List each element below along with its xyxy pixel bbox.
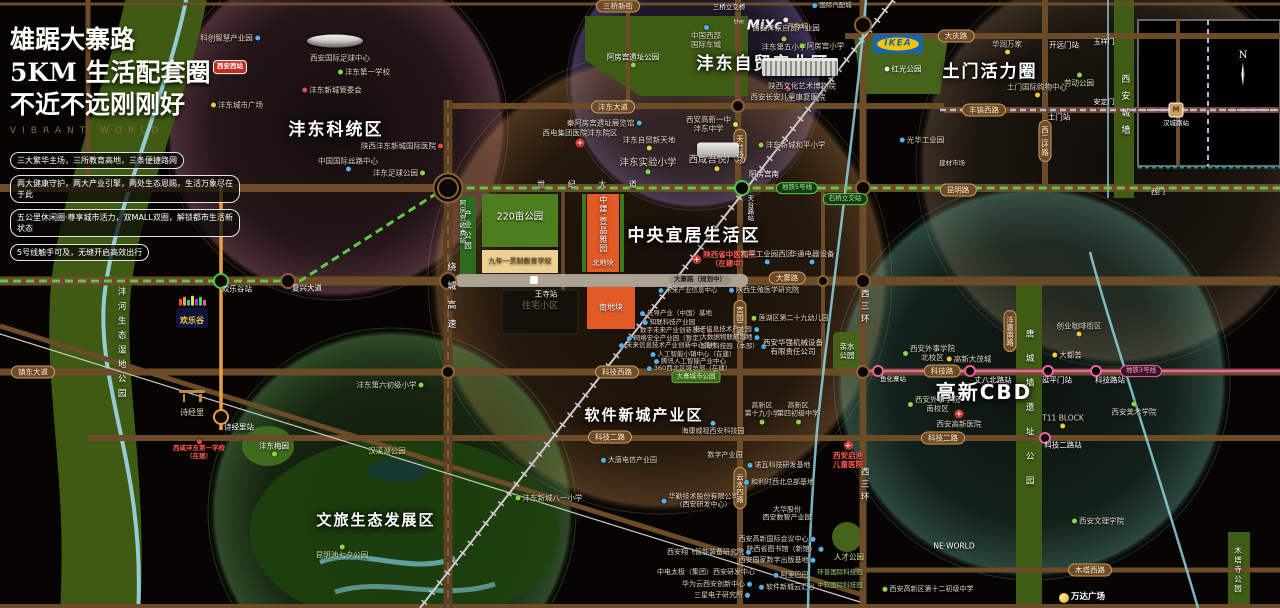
map-label: 复兴大道 <box>292 284 322 293</box>
poi: 沣东新城和平小学 <box>759 141 826 150</box>
map-label: 沣东自贸新天地 <box>623 136 676 145</box>
map-label: 西安高新医院 <box>937 420 982 429</box>
road-keji-west: 科技西路 <box>595 366 639 379</box>
station-wangsi: 王寺站 <box>535 290 558 299</box>
poi: 沣东新城管委会 <box>302 86 362 95</box>
poi: 高新区第四初级中学 <box>777 402 819 425</box>
header-panel: 雄踞大寨路 5KM 生活配套圈 不近不远刚刚好 VIBRANT WORLD 三大… <box>10 24 240 264</box>
map-label: 大唐电信产业园 <box>608 456 657 464</box>
map-label: 沣东新城八一小学 <box>523 494 583 503</box>
map-label: 沣河生态湿地公园 <box>116 287 126 403</box>
map-label: 阿里巴巴 <box>781 571 809 579</box>
map-label: 镇东大道 <box>18 368 48 377</box>
station-ring <box>856 365 870 379</box>
header-bullet: 两大健康守护，两大产业引擎，两处生态恩赐，生活万象尽在于此 <box>10 175 240 203</box>
poi: 未来产业信息中心 <box>659 287 718 295</box>
road-keji: 科技路 <box>924 365 961 378</box>
map-label: 丈八北路站 <box>974 376 1012 385</box>
station-yuhuazhai: 鱼化寨站 <box>880 376 906 384</box>
poi-dot-icon <box>420 171 425 176</box>
poi: 人才公园 <box>834 553 864 562</box>
poi: 光华工业园 <box>900 136 945 145</box>
poi: 高新区第十九小学 <box>745 402 780 425</box>
map-label: 陕西文化艺术博物院 <box>768 82 836 91</box>
map-label: 大寨城市公园 <box>677 373 716 381</box>
road-muta-west: 木塔西路 <box>1068 564 1112 577</box>
mutasi-park: 木塔寺公园 <box>1234 546 1243 594</box>
poi: T11 BLOCK <box>1042 414 1084 429</box>
poi: 创业咖啡街区 <box>1057 322 1102 337</box>
map-label: 中建·壹品雅园 <box>598 195 608 253</box>
map-label: 地铁3号线 <box>1126 367 1156 375</box>
poi: 三桥立交桥 <box>713 4 746 12</box>
poi: 西安高新一中沣东中学 <box>686 115 738 133</box>
poi: 环普国际科技园 <box>817 569 863 577</box>
poi-dot-icon <box>1077 73 1082 78</box>
map-label: 产业公园 <box>464 210 473 252</box>
map-label: 唐城墙遗址公园 <box>1024 329 1034 501</box>
poi: 沣东实验小学 <box>619 157 676 174</box>
station-shijingli: 诗经里站 <box>224 423 254 432</box>
poi-dot-icon <box>900 138 905 143</box>
poi: +西安高新医院 <box>937 410 982 429</box>
poi-dot-icon <box>747 581 752 586</box>
station-ring <box>441 365 455 379</box>
map-label: 鱼化寨站 <box>880 376 906 384</box>
map-label: M <box>1169 103 1184 118</box>
poi: 中国西部国际车城 <box>691 25 721 49</box>
station-kejilu: 科技路站 <box>1095 376 1125 385</box>
map-label: 西咸沣东第一学校（在建） <box>173 445 225 461</box>
poi: 沣东新城八一小学 <box>516 494 583 503</box>
station-yanpingmen: 延平门站 <box>1042 376 1072 385</box>
map-label: 石桥立交站 <box>829 195 862 203</box>
poi: 西安高新国际会议中心 <box>739 535 816 543</box>
map-label: 昆明池七夕公园 <box>316 551 369 560</box>
map-label: 大都荟 <box>1059 351 1082 360</box>
industry-park-strip: 产业公园 <box>464 210 473 252</box>
poi-dot-icon <box>1072 519 1077 524</box>
map-label: 西安文理学院 <box>1079 517 1124 526</box>
poi-dot-icon <box>643 320 648 325</box>
poi-dot-icon <box>302 88 307 93</box>
map-label: 中国国际丝路中心 <box>318 157 378 166</box>
station-ring <box>734 180 750 196</box>
poi-dot-icon <box>647 366 652 371</box>
map-label: 昆明路 <box>947 186 970 195</box>
map-label: 三桥新街 <box>603 2 633 11</box>
poi-dot-icon <box>255 36 260 41</box>
poi: 亲水公园 <box>840 342 855 360</box>
poi: 先导产业（中国）基地 <box>640 310 712 318</box>
poi-dot-icon <box>800 44 805 49</box>
poi-dot-icon <box>419 383 424 388</box>
poi: 阿房宫遗址公园 <box>607 53 660 68</box>
map-label: 万达广场 <box>1071 593 1105 603</box>
map-label: 北地块 <box>593 259 614 267</box>
header-bullet: 五公里休闲圈·尊享城市活力，双MALL双圈，解锁都市生活新状态 <box>10 209 240 237</box>
poi: 陕西生殖医学研究院 <box>729 286 799 294</box>
map-label: 亲水公园 <box>840 342 855 360</box>
map-label <box>179 390 205 393</box>
map-label: 和平工业园西区 <box>741 250 794 259</box>
map-label: 西三环 <box>859 289 869 327</box>
poi: 沣东自贸新天地 <box>623 136 676 151</box>
map-label: 诗经里 <box>180 408 204 418</box>
poi: 土门国际购物中心 <box>1007 83 1067 98</box>
map-label: 西安高新国际会议中心 <box>739 535 809 543</box>
poi-dot-icon <box>754 327 759 332</box>
poi: 西安翔飞智能装备研究院 <box>667 548 751 556</box>
map-label: 西安国家数字出版基地 <box>739 556 809 564</box>
ikea-logo: IKEA <box>873 35 923 54</box>
poi-dot-icon <box>438 144 443 149</box>
map-label: 汉城路站 <box>1163 120 1189 128</box>
map-label: 沣东新城和平小学 <box>766 141 826 150</box>
map-label: 高新区第四初级中学 <box>777 402 819 419</box>
station-ring <box>731 99 745 113</box>
gate-yuxiangmen: 玉祥门 <box>1094 38 1115 46</box>
project-school-label: 九年一贯制教育学校 <box>489 257 552 265</box>
map-label: 欢乐谷 <box>176 308 208 328</box>
road-dazhai-planned: 大寨路（规划中） <box>669 275 731 285</box>
map-label: 土门站 <box>1048 113 1071 122</box>
map-label: 沣东科统区 <box>289 120 384 140</box>
museum-shape <box>762 58 838 76</box>
map-label: 欢乐谷站 <box>222 285 252 294</box>
map-label: 住宅小区 <box>522 302 558 313</box>
poi-dot-icon <box>745 592 750 597</box>
poi: 中电太极（集团）西安研发中心 <box>657 568 755 576</box>
title-line-2: 5KM 生活配套圈 <box>10 57 240 90</box>
road-shiji-dadao: 世 纪 大 道 <box>537 180 647 190</box>
poi: 沣东第六初级小学 <box>357 381 424 390</box>
poi-dot-icon <box>796 419 801 424</box>
poi-dot-icon <box>733 122 738 127</box>
poi: 莲湖区第二十九幼儿园 <box>752 314 829 322</box>
map-label: 陕西生殖医学研究院 <box>736 286 799 294</box>
map-label: 秦阿房宫遗址展览馆 <box>567 119 635 128</box>
map-label: 科技路 <box>931 367 954 376</box>
station-afanggong-south: 阿房宫南 <box>749 170 779 179</box>
hospital-cross-icon: + <box>576 139 585 148</box>
map-label: 沣东新城管委会 <box>309 86 362 95</box>
tang-wall-park: 唐城墙遗址公园 <box>1024 329 1034 501</box>
poi: 华通电器设备 <box>790 250 835 265</box>
poi: 国际汽配城 <box>812 2 852 10</box>
poi: 西安华强机械设备有限责任公司 <box>763 338 823 356</box>
wanda-icon <box>1059 593 1069 603</box>
map-label: 创业咖啡街区 <box>1057 322 1102 331</box>
map-label: 大庆路 <box>945 32 968 41</box>
gate-ximen: 西门 <box>1151 188 1165 196</box>
map-label: T11 BLOCK <box>1042 414 1084 423</box>
residential-area: 住宅小区 <box>522 302 558 313</box>
map-label: 西咸吾悦广场 <box>688 154 745 165</box>
poi: 陕西文化艺术博物院 <box>768 82 836 91</box>
poi: 西咸吾悦广场 <box>688 154 745 171</box>
map-label: 世 纪 大 道 <box>537 180 647 190</box>
poi-dot-icon <box>516 496 521 501</box>
station-ring <box>817 275 829 287</box>
poi: 华润万家 <box>992 40 1022 55</box>
map-label: 环普国际科技园 <box>817 569 863 577</box>
map-label: 地铁5号线 <box>782 184 812 192</box>
map-label: 红光公园 <box>892 65 922 74</box>
map-label: the <box>734 20 744 27</box>
map-label: 陕西沣东新城国际医院 <box>361 142 436 151</box>
poi-dot-icon <box>601 457 606 462</box>
title-line-3: 不近不远刚刚好 <box>10 89 240 122</box>
fenghe-wetland-park: 沣河生态湿地公园 <box>116 287 126 403</box>
station-happy-valley: 欢乐谷站 <box>222 285 252 294</box>
poi: 高新大茂城 <box>947 355 992 364</box>
poi-dot-icon <box>908 402 913 407</box>
poi-dot-icon <box>272 452 277 457</box>
map-label: 科技二路 <box>595 433 625 442</box>
project-name: 中建·壹品雅园 <box>598 195 608 253</box>
map-label: 沣东足球公园 <box>373 169 418 178</box>
poi-dot-icon <box>810 260 815 265</box>
bullet-list: 三大繁华主场，三所教育高地，三条便捷路网两大健康守护，两大产业引擎，两处生态恩赐… <box>10 148 240 264</box>
hospital-cross-icon: + <box>955 410 964 419</box>
map-label: 开远门站 <box>1049 41 1079 50</box>
map-label: 软件新城云汇谷 <box>766 583 815 591</box>
poi: 阿里巴巴 <box>774 571 809 579</box>
map-label: 国际汽配城 <box>819 2 852 10</box>
poi: 西安国家数字出版基地 <box>739 556 816 564</box>
map-label: 建材市场 <box>939 160 965 168</box>
poi-dot-icon <box>784 18 789 23</box>
poi: 秦阿房宫遗址展览馆 <box>567 119 642 128</box>
project-north-plot: 北地块 <box>593 259 614 267</box>
map-label: 西电集团医院沣东院区 <box>543 129 618 138</box>
poi: 红光公园 <box>885 65 922 74</box>
map-label: 华勤技术股份有限公司（西安研发中心） <box>669 493 739 510</box>
compass-north: N <box>1239 50 1248 87</box>
map-label: 诗经里站 <box>224 423 254 432</box>
map-label: 科技西路 <box>602 368 632 377</box>
wanda-plaza-logo: 万达广场 <box>1059 593 1105 603</box>
map-label: 诺瓦科技研发基地 <box>755 461 811 469</box>
map-label: 西门 <box>1151 188 1165 196</box>
map-label: 沣东大道 <box>598 103 628 112</box>
map-label: 玉祥门 <box>1094 38 1115 46</box>
poi: 中软国际科技园 <box>817 582 863 590</box>
poi: NE·WORLD <box>933 542 974 551</box>
station-shiqiao: 石桥立交站 <box>823 193 868 205</box>
happy-valley-logo: 欢乐谷 <box>176 296 208 328</box>
poi: +西安启迪儿童医院 <box>833 441 863 469</box>
poi: 大都荟 <box>1052 351 1082 360</box>
xian-city-wall: 西安城墙 <box>1119 74 1130 142</box>
map-label: 西安长安儿童康复医院 <box>751 93 826 102</box>
map-label: 阿房宫遗址公园 <box>607 53 660 62</box>
road-daqing: 大庆路 <box>938 30 975 43</box>
map-label: 西安启迪儿童医院 <box>833 451 863 469</box>
poi-dot-icon <box>346 167 351 172</box>
road-fuxing: 复兴大道 <box>292 284 322 293</box>
map-label: 科技二路站 <box>1044 441 1082 450</box>
poi-dot-icon <box>659 288 664 293</box>
station-tiantailu: 天台路站 <box>745 195 753 221</box>
project-south-plot: 南地块 <box>599 303 623 313</box>
title-line-1: 雄踞大寨路 <box>10 24 240 57</box>
poi-dot-icon <box>811 557 816 562</box>
compass-needle <box>1239 62 1248 86</box>
map-label: 西安高新区第十二初级中学 <box>890 585 974 593</box>
poi: 西安高新区第十二初级中学 <box>883 585 974 593</box>
station-hanchenglu: 汉城路站 <box>1163 120 1189 128</box>
poi-dot-icon <box>1005 50 1010 55</box>
map-label: 大寨路（规划中） <box>674 276 726 284</box>
map-label: 和利时西北总部基地 <box>751 478 814 486</box>
poi-dot-icon <box>755 335 760 340</box>
poi: 西安美术学院 <box>1112 402 1157 417</box>
stadium-shape <box>307 35 363 48</box>
poi-dot-icon <box>729 287 734 292</box>
map-label: 高新大茂城 <box>954 355 992 364</box>
header-bullet: 三大繁华主场，三所教育高地，三条便捷路网 <box>10 152 184 169</box>
map-label: 沣惠南路 <box>1006 316 1015 346</box>
stadium-icon <box>307 35 363 48</box>
poi-dot-icon <box>631 63 636 68</box>
poi-dot-icon <box>647 146 652 151</box>
map-label: 人才公园 <box>834 553 864 562</box>
zone-central-living: 中央宜居生活区 <box>628 226 761 246</box>
map-label: 劳动公园 <box>1064 79 1094 88</box>
poi-dot-icon <box>774 572 779 577</box>
map-label: 天台路站 <box>745 195 753 221</box>
map-label: 西三环 <box>859 467 869 505</box>
metro-station-icon: M <box>1169 103 1184 118</box>
poi: 大寨城市公园 <box>672 371 721 383</box>
poi-dot-icon <box>1077 332 1082 337</box>
map-label: 220亩公园 <box>497 211 544 222</box>
road-sanqiao: 三桥新街 <box>596 0 640 13</box>
subtitle: VIBRANT WORLD <box>10 126 240 136</box>
ikea-ellipse: IKEA <box>877 38 919 51</box>
map-label: 沣东实验小学 <box>619 157 676 168</box>
road-dazhai: 大寨路 <box>769 272 806 285</box>
poi: 诗经里 <box>180 408 204 418</box>
project-park-label: 220亩公园 <box>497 211 544 222</box>
poi-dot-icon <box>704 25 709 30</box>
poi-dot-icon <box>636 121 641 126</box>
station-tumen: 土门站 <box>1048 113 1071 122</box>
map-label: 数字产业园 <box>708 451 743 459</box>
gate-andingmen: 安定门 <box>1094 98 1115 106</box>
poi-dot-icon <box>812 3 817 8</box>
map-label: 安定门 <box>1094 98 1115 106</box>
poi: 华勤技术股份有限公司（西安研发中心） <box>662 493 739 510</box>
poi-dot-icon <box>619 343 624 348</box>
poi-dot-icon <box>748 462 753 467</box>
map-label: 华通电器设备 <box>790 250 835 259</box>
poi-dot-icon <box>662 499 667 504</box>
map-label: 木塔西路 <box>1075 566 1105 575</box>
poi: 数字产业园 <box>708 451 743 459</box>
poi-dot-icon <box>782 37 787 42</box>
map-label: NE·WORLD <box>933 542 974 551</box>
map-label: 九年一贯制教育学校 <box>489 257 552 265</box>
header-bullet: 5号线触手可及，无缝开启高效出行 <box>10 244 149 261</box>
poi: 大唐电信产业园 <box>601 456 657 464</box>
poi-dot-icon <box>819 546 824 551</box>
poi-dot-icon <box>1035 93 1040 98</box>
map-label: 汉溪湖公园 <box>368 447 406 456</box>
poi: 和利时西北总部基地 <box>744 478 814 486</box>
map-label: 大华股份西安数智产业园 <box>763 506 812 523</box>
map-label <box>183 394 202 402</box>
map-label: 王寺站 <box>535 290 558 299</box>
map-label: 南地块 <box>599 303 623 313</box>
poi-dot-icon <box>1061 424 1066 429</box>
poi: 西安文理学院 <box>1072 517 1124 526</box>
poi: 阿房宫小学 <box>800 42 845 51</box>
poi-dot-icon <box>765 260 770 265</box>
poi: 陕西沣东新城国际医院 <box>361 142 443 151</box>
poi-dot-icon <box>759 584 764 589</box>
poi: 陕西省图书馆（新馆） <box>747 545 824 553</box>
road-fenghui-south: 沣惠南路 <box>1004 310 1017 352</box>
map-label: 沣东第一学校 <box>345 68 390 77</box>
ikea-logo-box: IKEA <box>873 35 923 54</box>
station-keji-2: 科技二路站 <box>1044 441 1082 450</box>
map-label: 西安沣东自贸产业园 <box>752 24 820 33</box>
map-label: 西二环路 <box>1041 126 1050 156</box>
hospital-cross-icon: + <box>844 441 853 450</box>
map-label: 科技二路 <box>928 434 958 443</box>
map-label: 陕西省图书馆（新馆） <box>747 545 817 553</box>
poi-dot-icon <box>744 479 749 484</box>
map-label: 土门活力圈 <box>943 62 1038 82</box>
poi-dot-icon <box>883 586 888 591</box>
map-label: 木塔寺公园 <box>1234 546 1243 594</box>
poi: 华为云西安创新中心 <box>682 580 752 588</box>
road-west-3rd-ring-s: 西三环 <box>859 467 869 505</box>
poi-dot-icon <box>746 549 751 554</box>
poi-dot-icon <box>651 352 656 357</box>
map-label: 海康威视西安科技园 <box>682 427 745 435</box>
road-west-2nd-ring: 西二环路 <box>1039 120 1052 162</box>
zone-fengdong-ketong: 沣东科统区 <box>289 120 384 140</box>
poi: 三星电子研究所 <box>694 591 750 599</box>
poi: 沣东第一学校 <box>338 68 390 77</box>
hospital-cross-icon: + <box>692 255 701 264</box>
zone-tumen: 土门活力圈 <box>943 62 1038 82</box>
map-label: 三桥立交桥 <box>713 4 746 12</box>
poi: 和平工业园西区 <box>741 250 794 265</box>
poi-dot-icon <box>340 545 345 550</box>
map-label: 先导产业（中国）基地 <box>647 310 712 318</box>
station-zhangba-north: 丈八北路站 <box>974 376 1012 385</box>
station-kaiyuanmen: 开远门站 <box>1049 41 1079 50</box>
map-label: 未来产业信息中心 <box>666 287 718 295</box>
map-label: 土门国际购物中心 <box>1007 83 1067 92</box>
map-label: 华润万家 <box>992 40 1022 49</box>
map-label: 中国西部国际车城 <box>691 31 721 49</box>
map-label: 阿房宫小学 <box>807 42 845 51</box>
road-fenghao-west: 丰镐西路 <box>962 104 1006 117</box>
poi: 汉溪湖公园 <box>368 447 406 456</box>
poi: 海康威视西安科技园 <box>682 421 745 435</box>
map-label: 西安美术学院 <box>1112 408 1157 417</box>
map-label: 大寨路 <box>776 274 799 283</box>
poi: 昆明池七夕公园 <box>316 545 369 560</box>
map-label: 延平门站 <box>1042 376 1072 385</box>
poi: 诺瓦科技研发基地 <box>748 461 811 469</box>
